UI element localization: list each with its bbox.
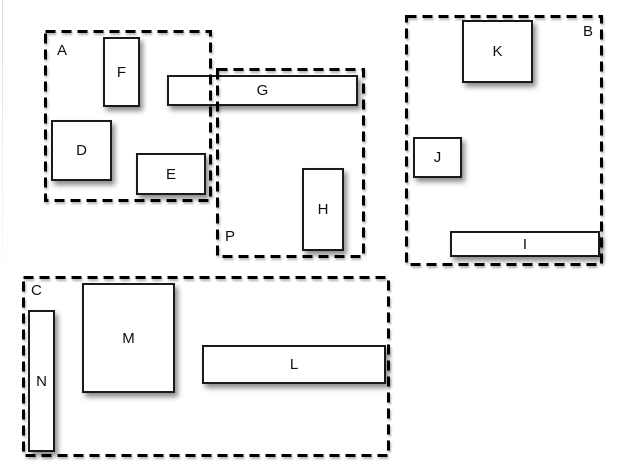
canvas-edge-line [2,0,3,300]
box-label-N: N [36,373,47,390]
box-label-G: G [257,82,269,99]
box-label-F: F [117,64,126,81]
shape-box-H: H [302,168,344,251]
box-label-J: J [434,149,442,166]
box-label-I: I [523,236,527,253]
shape-box-I: I [450,231,600,257]
region-label-P: P [225,229,235,244]
shape-box-K: K [462,20,533,83]
shape-box-N: N [28,310,55,452]
shape-box-E: E [136,153,206,195]
region-label-B: B [583,24,593,39]
box-label-D: D [76,142,87,159]
diagram-canvas: F D E G H K J I M N L A P B C [0,0,623,476]
shape-box-F: F [103,37,140,107]
shape-box-D: D [51,120,112,181]
box-label-L: L [290,356,298,373]
box-label-H: H [318,201,329,218]
shape-box-L: L [202,345,386,384]
shape-box-M: M [82,283,175,393]
region-label-A: A [57,43,67,58]
box-label-M: M [122,330,135,347]
region-label-C: C [31,283,42,298]
shape-box-G: G [167,75,358,106]
box-label-K: K [492,43,502,60]
box-label-E: E [166,166,176,183]
shape-box-J: J [413,137,462,178]
